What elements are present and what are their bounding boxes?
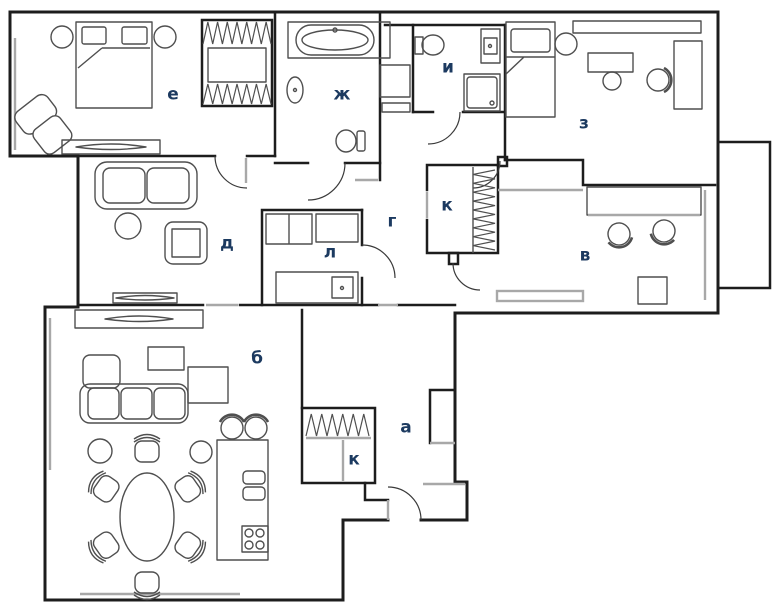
furniture-living-b <box>75 310 268 600</box>
double-bed-icon <box>76 22 152 108</box>
door-arc-bedroom-e <box>215 156 247 188</box>
room-label-zh: ж <box>334 87 351 104</box>
sink-icon <box>243 471 265 484</box>
room-label-l: л <box>324 245 336 262</box>
furniture-pantry-l <box>266 214 358 303</box>
room-label-e: е <box>167 87 179 104</box>
cabinet-icon <box>674 41 702 109</box>
shelf-desk-icon <box>573 21 701 33</box>
blanket-fold <box>506 57 555 74</box>
floor-plan-drawing <box>0 0 777 608</box>
room-label-k1: к <box>441 198 453 215</box>
dining-chair-icon <box>172 528 209 565</box>
desk-icon <box>587 187 701 215</box>
side-table-icon <box>188 367 228 403</box>
room-label-a: а <box>400 420 411 437</box>
door-arc-wc-i <box>428 112 460 144</box>
room-label-g: г <box>388 214 397 231</box>
office-chair-icon <box>605 221 634 250</box>
sink-icon <box>243 487 265 500</box>
room-label-z: з <box>579 116 589 133</box>
duct-shaft <box>382 103 410 112</box>
tv-icon <box>76 144 146 150</box>
toilet-icon <box>422 35 444 55</box>
room-label-k2: к <box>348 452 360 469</box>
round-table-icon <box>115 213 141 239</box>
bedside-lamp-icon <box>154 26 176 48</box>
pouf-icon <box>190 441 212 463</box>
stool-icon <box>603 72 621 90</box>
furniture-bedroom-e <box>12 22 176 159</box>
dining-table-icon <box>120 473 174 561</box>
bar-stool-icon <box>244 415 268 439</box>
wardrobe-e <box>202 20 272 106</box>
tv-console-icon <box>113 293 177 303</box>
tv-icon <box>116 296 174 301</box>
pillow-icon <box>511 29 550 52</box>
room-label-d: д <box>220 236 234 253</box>
interior-walls <box>10 12 715 500</box>
door-arc-bath-zh <box>308 163 345 200</box>
sink-icon <box>287 77 303 103</box>
pillow-icon <box>82 27 106 44</box>
tv-console-icon <box>75 310 203 328</box>
bar-stool-icon <box>220 415 244 439</box>
radiator <box>497 291 583 301</box>
shelf-icon <box>316 214 358 242</box>
door-arc-pantry-l <box>362 245 395 278</box>
sofa-icon <box>95 162 197 209</box>
bedside-lamp-icon <box>51 26 73 48</box>
dining-chair-icon <box>134 435 160 463</box>
column <box>638 277 667 304</box>
round-stool-icon <box>555 33 577 55</box>
tv-icon <box>105 316 173 322</box>
room-label-v: в <box>580 248 591 265</box>
pillow-icon <box>122 27 147 44</box>
hanger-zigzag <box>306 414 369 436</box>
hanger-zigzag <box>473 170 495 250</box>
hanger-zigzag <box>203 84 271 104</box>
wardrobe-hatching <box>202 20 495 436</box>
dining-chair-icon <box>85 528 122 565</box>
duct-shaft <box>380 65 410 97</box>
furniture-room-z <box>506 21 702 117</box>
single-bed-icon <box>506 22 555 117</box>
bay-balcony <box>718 142 770 288</box>
toilet-icon <box>336 130 356 152</box>
office-chair-icon <box>647 68 671 92</box>
coffee-table-icon <box>148 347 184 370</box>
furniture-wc-i <box>415 29 500 111</box>
furniture-lounge-d <box>95 162 207 303</box>
office-chair-icon <box>649 217 678 247</box>
door-arc-office-v <box>453 263 480 290</box>
armchair-icon <box>12 91 77 159</box>
dining-chair-icon <box>85 468 122 505</box>
dining-chair-icon <box>134 572 160 600</box>
floor-plan: е ж и з д г к в л б а к <box>0 0 777 608</box>
blanket-fold <box>78 48 150 68</box>
desk-icon <box>588 53 633 72</box>
hanger-zigzag <box>203 22 271 44</box>
entrance-door-arc <box>388 487 421 520</box>
shower-icon <box>464 74 500 111</box>
dining-chair-icon <box>172 468 209 505</box>
pouf-icon <box>88 439 112 463</box>
room-label-b: б <box>251 351 263 368</box>
windows-and-openings <box>15 38 705 594</box>
corner-sofa-icon <box>80 384 188 423</box>
room-label-i: и <box>442 60 454 77</box>
sofa-chaise <box>83 355 120 388</box>
furniture-office-v <box>587 187 701 304</box>
